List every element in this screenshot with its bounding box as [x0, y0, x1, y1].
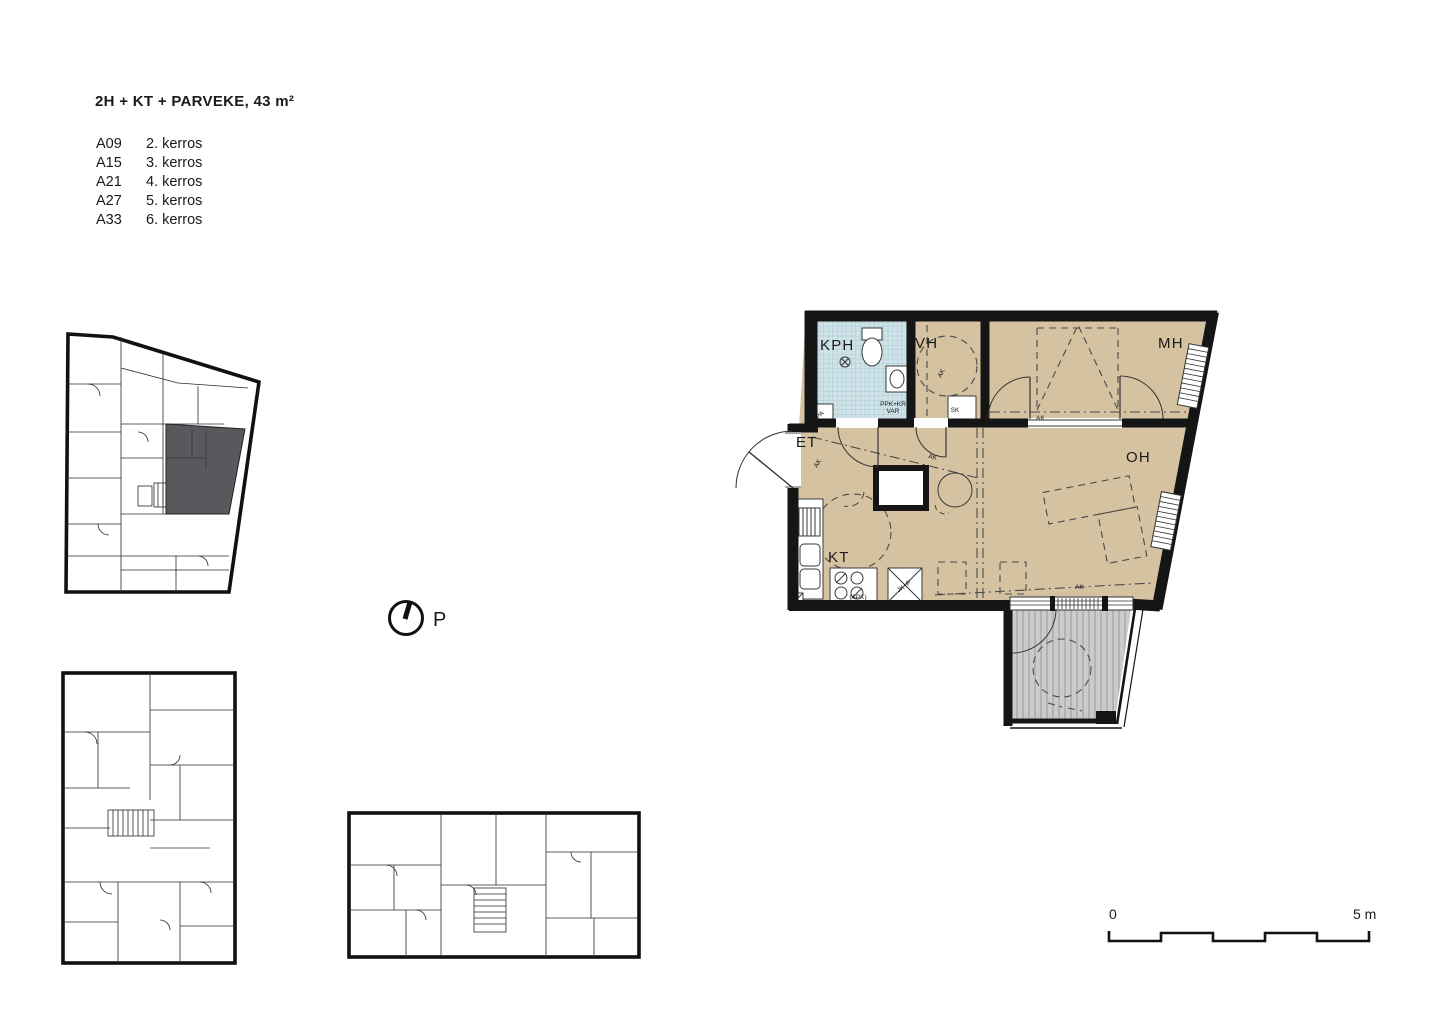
label-sk: SK	[951, 407, 960, 414]
unit-code: A21	[96, 173, 146, 192]
shaft	[876, 468, 926, 508]
room-label-mh: MH	[1158, 335, 1184, 352]
key-plan-highlighted	[58, 328, 268, 600]
balcony-glazing	[1010, 597, 1133, 610]
room-label-kt: KT	[828, 549, 850, 566]
page-title: 2H + KT + PARVEKE, 43 m²	[95, 93, 294, 110]
scale-bar: 0 5 m	[1095, 895, 1395, 955]
balcony-floor	[1012, 609, 1131, 720]
room-label-kph: KPH	[820, 337, 854, 354]
north-label: P	[433, 609, 446, 631]
label-ak: AK	[1075, 584, 1084, 591]
unit-floor: 4. kerros	[146, 173, 202, 192]
key-plan-3	[346, 810, 642, 960]
unit-row: A153. kerros	[96, 154, 202, 173]
unit-code: A15	[96, 154, 146, 173]
unit-floor: 3. kerros	[146, 154, 202, 173]
unit-row: A092. kerros	[96, 135, 202, 154]
unit-code: A27	[96, 192, 146, 211]
north-arrow-icon: P	[385, 595, 465, 643]
room-label-vh: VH	[915, 335, 938, 352]
unit-row: A275. kerros	[96, 192, 202, 211]
label-ppk: PPK+KR	[880, 401, 906, 408]
main-floor-plan: KPH VH MH ET OH KT SK PPK+KR VAR PA (APK…	[725, 290, 1245, 750]
scale-bar-line	[1109, 931, 1369, 941]
room-label-et: ET	[796, 434, 818, 451]
label-ak: AK	[1036, 415, 1045, 422]
unit-floor: 5. kerros	[146, 192, 202, 211]
key-plan-2	[60, 670, 240, 967]
label-ppk-var: VAR	[887, 408, 900, 415]
scale-start: 0	[1109, 906, 1117, 922]
floor-plan-sheet: { "header": { "title": "2H + KT + PARVEK…	[0, 0, 1440, 1018]
entry-door-swing	[736, 431, 793, 488]
unit-row: A214. kerros	[96, 173, 202, 192]
room-label-oh: OH	[1126, 449, 1151, 466]
unit-list: A092. kerros A153. kerros A214. kerros A…	[96, 135, 202, 230]
unit-code: A09	[96, 135, 146, 154]
unit-code: A33	[96, 211, 146, 230]
unit-floor: 6. kerros	[146, 211, 202, 230]
unit-row: A336. kerros	[96, 211, 202, 230]
scale-end: 5 m	[1353, 906, 1376, 922]
unit-floor: 2. kerros	[146, 135, 202, 154]
label-apk: (APK)	[849, 594, 866, 601]
